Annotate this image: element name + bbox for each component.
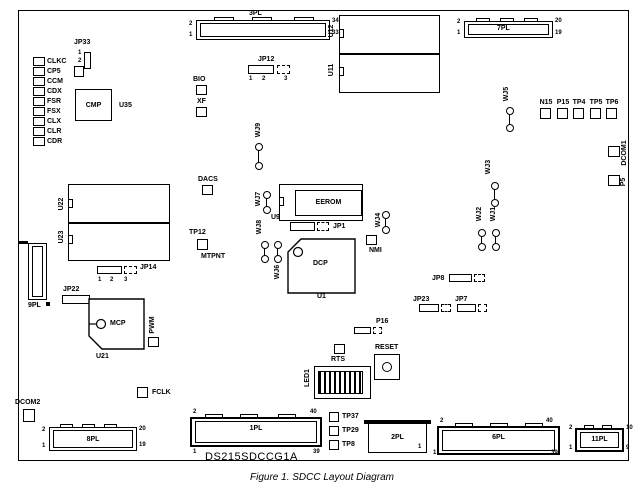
- jumper-jp12-pin1: 1: [249, 76, 252, 82]
- pin-label: 39: [551, 450, 558, 456]
- ic-u23-label: U23: [58, 227, 66, 247]
- wire-jumper-wj1-label: WJ1: [490, 206, 498, 222]
- pin-label: 10: [626, 425, 633, 431]
- testpoint-pwm-label: PWM: [149, 314, 157, 336]
- testpoint-cdx-label: CDX: [47, 88, 62, 96]
- testpoint-nmi-label: NMI: [369, 247, 382, 255]
- pin-label: 2: [569, 425, 572, 431]
- testpoint-dcom1: [608, 146, 620, 157]
- testpoint-fsx-label: FSX: [47, 108, 61, 116]
- ic-notch: [69, 199, 73, 208]
- pin-label: 2: [189, 21, 192, 27]
- connector-3pl-key: [252, 17, 272, 21]
- testpoint-pwm: [148, 337, 159, 347]
- testpoint-tp4-label: TP4: [570, 99, 588, 107]
- jumper-jp14-pin3: 3: [124, 277, 127, 283]
- pin-label: 19: [139, 442, 146, 448]
- jumper-jp14-pin1: 1: [98, 277, 101, 283]
- ic-u35-ref: U35: [119, 102, 132, 110]
- connector-11pl-key: [584, 425, 594, 429]
- wire-jumper-wj1: [492, 229, 500, 237]
- board-name: DS215SDCCG1A: [205, 451, 298, 463]
- testpoint-tp5: [590, 108, 601, 119]
- testpoint-fclk: [137, 387, 148, 398]
- connector-1pl-key: [278, 414, 296, 418]
- connector-3pl-key: [214, 17, 234, 21]
- testpoint-nmi: [366, 235, 377, 245]
- jumper-jp12-body: [248, 65, 274, 74]
- testpoint-xf-label: XF: [197, 98, 206, 106]
- connector-9pl-mark: [46, 302, 50, 306]
- connector-9pl-key: [18, 241, 28, 244]
- reset-button-actuator: [382, 362, 392, 372]
- testpoint-tp29: [329, 426, 339, 436]
- testpoint-clx-label: CLX: [47, 118, 61, 126]
- jumper-jp8-label: JP8: [432, 275, 444, 283]
- testpoint-rts-label: RTS: [331, 356, 345, 364]
- testpoint-bio-label: BIO: [193, 76, 205, 84]
- wire-jumper-wj2: [478, 229, 486, 237]
- jumper-jp23-body: [419, 304, 439, 312]
- testpoint-cp5: [33, 67, 45, 76]
- ic-notch: [340, 29, 344, 38]
- testpoint-dacs: [202, 185, 213, 195]
- wire-jumper-wj4: [382, 226, 390, 234]
- jumper-jp12-open: [277, 65, 290, 74]
- connector-8pl-key: [60, 424, 73, 428]
- wire-jumper-wj4: [382, 211, 390, 219]
- ic-u22-label: U22: [58, 194, 66, 214]
- jumper-jp12-label: JP12: [258, 56, 274, 64]
- pcb-layout-figure: 3PL 2 1 34 33 U12 U11 7PL 2 1 20 19 JP33…: [0, 0, 644, 493]
- jumper-jp7-body: [457, 304, 476, 312]
- ic-divider: [68, 222, 170, 224]
- testpoint-clkc-label: CLKC: [47, 58, 66, 66]
- testpoint-cdr: [33, 137, 45, 146]
- ic-cmp-label: CMP: [75, 102, 112, 110]
- jumper-jp22-label: JP22: [63, 286, 79, 294]
- pin-label: 2: [457, 19, 460, 25]
- connector-7pl-label: 7PL: [497, 25, 510, 33]
- testpoint-mtpnt-label: MTPNT: [201, 253, 225, 261]
- wire-jumper-wj7: [263, 206, 271, 214]
- pin-label: 1: [193, 449, 196, 455]
- ic-u11-label: U11: [328, 60, 336, 80]
- connector-8pl-key: [82, 424, 95, 428]
- ic-notch: [280, 197, 284, 206]
- jumper-jp14-body: [97, 266, 122, 274]
- testpoint-dcom2: [23, 409, 35, 422]
- pin-label: 1: [418, 444, 421, 450]
- ic-u9-ref: U9: [271, 214, 280, 222]
- ic-u21-ref: U21: [96, 353, 109, 361]
- testpoint-clr: [33, 127, 45, 136]
- figure-caption: Figure 1. SDCC Layout Diagram: [0, 472, 644, 483]
- wire-jumper-wj7-label: WJ7: [255, 191, 263, 207]
- connector-9pl: [28, 243, 47, 300]
- connector-3pl: [196, 20, 330, 40]
- wire-jumper-wj9-label: WJ9: [255, 122, 263, 138]
- testpoint-p15: [557, 108, 568, 119]
- connector-3pl-inner: [200, 23, 326, 37]
- connector-9pl-inner: [32, 246, 43, 297]
- wire-jumper-wj7: [263, 191, 271, 199]
- jumper-jp33-pin2: 2: [78, 58, 81, 64]
- pin-label: 1: [42, 443, 45, 449]
- testpoint-tp4: [573, 108, 584, 119]
- connector-1pl-key: [240, 414, 258, 418]
- jumper-jp14-pin2: 2: [110, 277, 113, 283]
- connector-2pl-label: 2PL: [368, 434, 427, 442]
- pin-label: 40: [546, 418, 553, 424]
- testpoint-p5: [608, 175, 620, 186]
- pin-label: 1: [569, 445, 572, 451]
- wire-jumper-wj2: [478, 243, 486, 251]
- wire-jumper-wj6: [274, 255, 282, 263]
- testpoint-xf: [196, 107, 207, 117]
- testpoint-tp29-label: TP29: [342, 427, 359, 435]
- testpoint-dcom1-label: DCOM1: [621, 139, 629, 167]
- reset-button-label: RESET: [375, 344, 398, 352]
- pin-label: 20: [555, 18, 562, 24]
- connector-8pl-key: [104, 424, 117, 428]
- jumper-jp23-label: JP23: [413, 296, 429, 304]
- jumper-jp7-open: [478, 304, 487, 312]
- jumper-jp23-open: [441, 304, 451, 312]
- ic-notch: [69, 235, 73, 244]
- wire-jumper-wj3: [491, 182, 499, 190]
- wire-jumper-wj6-label: WJ6: [274, 264, 282, 280]
- connector-6pl-key: [525, 423, 543, 427]
- testpoint-fclk-label: FCLK: [152, 389, 171, 397]
- jumper-jp12-pin2: 2: [262, 76, 265, 82]
- ic-dcp-label: DCP: [313, 260, 328, 268]
- ic-eerom-label: EEROM: [295, 199, 362, 207]
- jumper-jp8-body: [449, 274, 472, 282]
- testpoint-bio: [196, 85, 207, 95]
- testpoint-ccm-label: CCM: [47, 78, 63, 86]
- pin-label: 1: [457, 30, 460, 36]
- testpoint-tp8-label: TP8: [342, 441, 355, 449]
- jumper-jp22-body: [62, 295, 90, 304]
- wire-jumper-wj1: [492, 243, 500, 251]
- pin-label: 2: [42, 427, 45, 433]
- pin-label: 1: [433, 450, 436, 456]
- connector-1pl-key: [205, 414, 223, 418]
- testpoint-cdx: [33, 87, 45, 96]
- testpoint-tp6-label: TP6: [603, 99, 621, 107]
- ic-divider: [339, 53, 440, 55]
- pin-label: 40: [310, 409, 317, 415]
- wire-jumper-wj8-label: WJ8: [256, 219, 264, 235]
- testpoint-tp37-label: TP37: [342, 413, 359, 421]
- testpoint-n15-label: N15: [537, 99, 555, 107]
- testpoint-fsr-label: FSR: [47, 98, 61, 106]
- jumper-jp33-body: [84, 52, 91, 69]
- ic-u1-ref: U1: [317, 293, 326, 301]
- connector-6pl-key: [455, 423, 473, 427]
- testpoint-clkc: [33, 57, 45, 66]
- pin-label: 2: [440, 418, 443, 424]
- wire-jumper-wj3-label: WJ3: [485, 159, 493, 175]
- testpoint-cdr-label: CDR: [47, 138, 62, 146]
- jumper-jp14-label: JP14: [140, 264, 156, 272]
- connector-11pl-key: [602, 425, 612, 429]
- connector-1pl-label: 1PL: [190, 425, 322, 433]
- jumper-p16-label: P16: [376, 318, 388, 326]
- testpoint-rts: [334, 344, 345, 354]
- jumper-jp8-open: [474, 274, 485, 282]
- testpoint-cp5-label: CP5: [47, 68, 61, 76]
- pin-label: 9: [626, 445, 629, 451]
- testpoint-tp12: [197, 239, 208, 250]
- wire-jumper-wj2-label: WJ2: [476, 206, 484, 222]
- wire-jumper-wj5: [506, 124, 514, 132]
- wire-jumper-wj9: [255, 162, 263, 170]
- ic-mcp-label: MCP: [110, 320, 126, 328]
- wire-jumper-wj8: [261, 241, 269, 249]
- connector-7pl-key: [524, 18, 538, 22]
- testpoint-tp6: [606, 108, 617, 119]
- pin-label: 20: [139, 426, 146, 432]
- testpoint-tp8: [329, 440, 339, 450]
- jumper-jp1-label: JP1: [333, 223, 345, 231]
- jumper-jp12-pin3: 3: [284, 76, 287, 82]
- connector-6pl-label: 6PL: [437, 434, 560, 442]
- jumper-jp1-body: [290, 222, 315, 231]
- testpoint-dacs-label: DACS: [198, 176, 218, 184]
- testpoint-clx: [33, 117, 45, 126]
- jumper-jp14-open: [124, 266, 137, 274]
- jumper-jp33-pin1: 1: [78, 50, 81, 56]
- testpoint-ccm: [33, 77, 45, 86]
- connector-3pl-key: [294, 17, 314, 21]
- wire-jumper-wj8: [261, 255, 269, 263]
- led1-segments: [318, 371, 363, 394]
- pin-label: 39: [313, 449, 320, 455]
- led1-label: LED1: [304, 366, 312, 390]
- connector-9pl-label: 9PL: [28, 302, 41, 310]
- jumper-jp1-open: [317, 222, 329, 231]
- testpoint-tp12-label: TP12: [189, 229, 206, 237]
- testpoint-n15: [540, 108, 551, 119]
- ic-notch: [340, 67, 344, 76]
- testpoint-p5-label: P5: [620, 176, 628, 188]
- connector-7pl-key: [500, 18, 514, 22]
- testpoint-fsr: [33, 97, 45, 106]
- testpoint-tp37: [329, 412, 339, 422]
- testpoint-fsx: [33, 107, 45, 116]
- wire-jumper-wj9: [255, 143, 263, 151]
- pin-label: 2: [193, 409, 196, 415]
- connector-6pl-key: [490, 423, 508, 427]
- ic-u12-label: U12: [328, 21, 336, 41]
- wire-jumper-wj5: [506, 107, 514, 115]
- testpoint-dcom2-label: DCOM2: [15, 399, 40, 407]
- pin-label: 19: [555, 30, 562, 36]
- testpoint-clr-label: CLR: [47, 128, 61, 136]
- connector-8pl-label: 8PL: [49, 436, 137, 444]
- jumper-jp7-label: JP7: [455, 296, 467, 304]
- jumper-p16-open: [373, 327, 382, 334]
- wire-jumper-wj6: [274, 241, 282, 249]
- connector-11pl-label: 11PL: [575, 436, 624, 444]
- pin-label: 1: [189, 32, 192, 38]
- connector-7pl-key: [476, 18, 490, 22]
- wire-jumper-wj5-label: WJ5: [503, 86, 511, 102]
- jumper-jp33-body: [74, 66, 84, 77]
- jumper-p16-body: [354, 327, 371, 334]
- jumper-jp33-label: JP33: [74, 39, 90, 47]
